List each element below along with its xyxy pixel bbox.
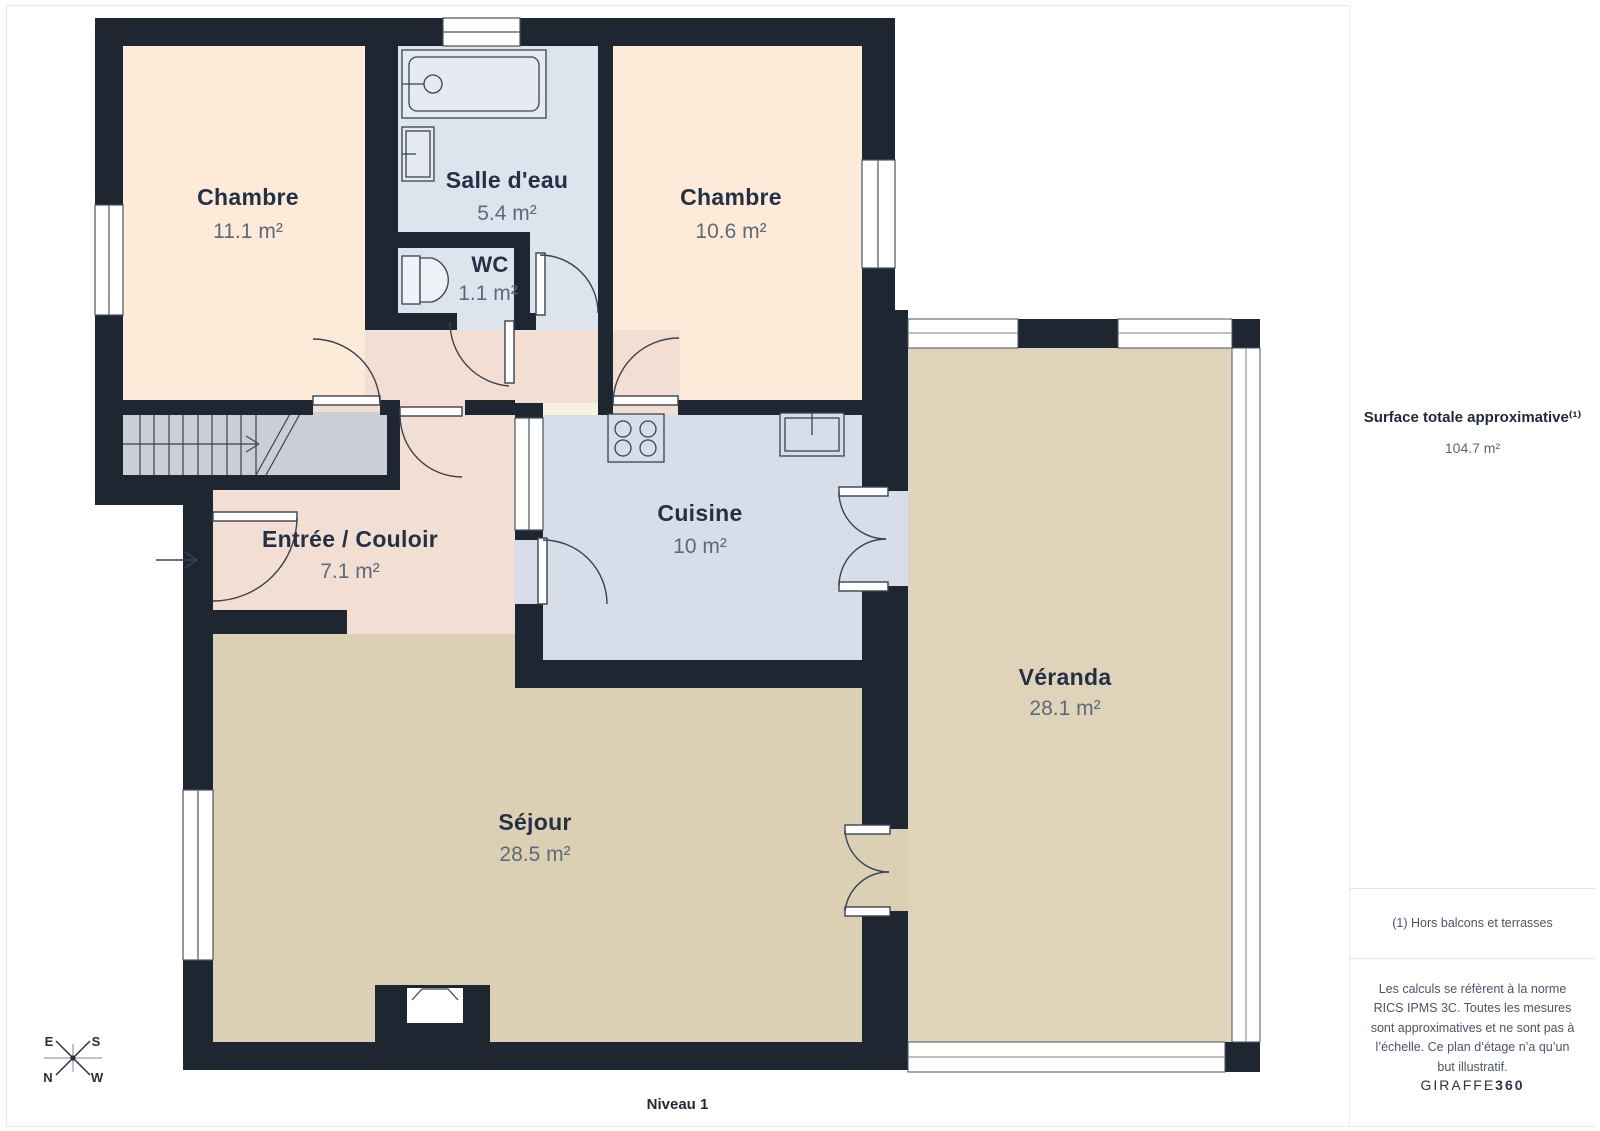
room-label-chambre-2: Chambre (680, 184, 782, 210)
room-area-chambre-2: 10.6 m² (695, 220, 766, 243)
kitchen-sink-icon (780, 413, 844, 456)
compass-icon: E S N W (43, 1034, 104, 1085)
surface-total-value: 104.7 m² (1350, 440, 1595, 456)
stove-icon (608, 414, 664, 462)
room-label-entree: Entrée / Couloir (262, 526, 438, 552)
toilet-icon (402, 256, 448, 304)
floorplan-page: Chambre 11.1 m² Salle d'eau 5.4 m² WC 1.… (0, 0, 1600, 1131)
level-label: Niveau 1 (6, 1096, 1349, 1113)
room-label-chambre-1: Chambre (197, 184, 299, 210)
room-label-wc: WC (471, 252, 508, 277)
compass-letter-n: N (43, 1070, 52, 1085)
bathtub-icon (402, 50, 546, 118)
room-area-cuisine: 10 m² (673, 535, 727, 558)
staircase (123, 412, 387, 475)
corridor-floor (365, 330, 680, 403)
room-area-veranda: 28.1 m² (1029, 697, 1100, 720)
window-salle-deau (443, 18, 520, 46)
door-gap-sejour-veranda (862, 829, 908, 911)
brand-name: GIRAFFE (1420, 1077, 1495, 1093)
compass-letter-w: W (91, 1070, 104, 1085)
surface-total-title: Surface totale approximative⁽¹⁾ (1350, 408, 1595, 426)
room-veranda-floor (908, 348, 1232, 1042)
room-sejour-floor (213, 634, 862, 1042)
footnote: (1) Hors balcons et terrasses (1350, 888, 1595, 958)
room-area-sejour: 28.5 m² (499, 843, 570, 866)
room-area-salle-deau: 5.4 m² (477, 202, 537, 225)
room-label-sejour: Séjour (498, 809, 571, 835)
window-chambre-1 (95, 205, 123, 315)
room-label-cuisine: Cuisine (657, 500, 742, 526)
compass-letter-s: S (92, 1034, 101, 1049)
disclaimer-text: Les calculs se réfèrent à la norme RICS … (1350, 980, 1595, 1077)
room-label-veranda: Véranda (1019, 664, 1112, 690)
window-sejour (183, 790, 213, 960)
brand-suffix: 360 (1495, 1077, 1524, 1093)
surface-total-block: Surface totale approximative⁽¹⁾ 104.7 m² (1350, 408, 1595, 456)
bathroom-sink-icon (402, 127, 434, 181)
giraffe360-logo: GIRAFFE360 (1350, 1077, 1595, 1093)
info-sidebar: Surface totale approximative⁽¹⁾ 104.7 m²… (1349, 5, 1595, 1125)
window-cuisine-partition (515, 418, 543, 530)
sidebar-divider-2 (1350, 958, 1595, 959)
compass-letter-e: E (45, 1034, 54, 1049)
window-chambre-2 (862, 160, 895, 268)
room-area-entree: 7.1 m² (320, 560, 380, 583)
room-area-chambre-1: 11.1 m² (213, 220, 283, 243)
fireplace (407, 988, 463, 1023)
room-label-salle-deau: Salle d'eau (446, 167, 569, 193)
room-area-wc: 1.1 m² (458, 282, 518, 305)
